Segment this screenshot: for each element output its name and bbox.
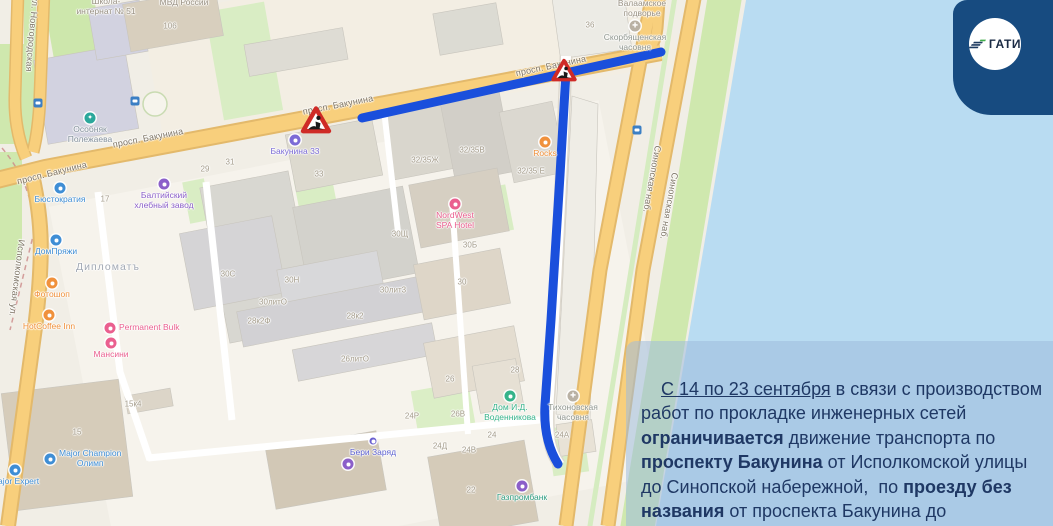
poi-icon [47,278,58,289]
annotation-segment: движение транспорта по [784,428,996,448]
building-number: 32/35Ж [411,155,438,164]
poi-icon [44,310,55,321]
building-number: 30С [221,269,236,278]
poi-label: Major Expert [0,477,39,487]
building-number: 24Д [433,441,447,450]
poi-icon [540,137,551,148]
annotation-segment: ограничивается [641,428,784,448]
building-number: 106 [163,21,176,30]
poi-icon [517,481,528,492]
poi-icon [343,459,354,470]
poi-icon [159,179,170,190]
street-label: Исполкомская ул. [7,239,27,317]
annotation-segment: С 14 по 23 сентября [661,379,831,399]
building-number: 17 [101,194,110,203]
street-label: Синопская наб. [641,145,663,214]
poi-icon [55,183,66,194]
building-number: 30литО [259,297,287,306]
poi-label: Бери Заряд [350,448,396,458]
building-number: 30Н [285,275,300,284]
poi-icon: ✚ [630,21,641,32]
roadworks-sign-icon [549,57,579,92]
area-label: Дипломатъ [76,261,140,273]
poi-label: Бюстократия [35,195,86,205]
poi-label: Permanent Bulk [119,323,179,333]
building-number: 32/35 Е [517,166,545,175]
transport-stop-icon [633,126,642,135]
transport-stop-icon [131,97,140,106]
building-number: 30лит3 [380,285,406,294]
street-label: ул. Новгородская [24,0,41,72]
poi-icon [45,454,56,465]
building-number: 32/35В [459,145,484,154]
gati-badge: ГАТИ [953,0,1053,115]
poi-icon [370,438,377,445]
poi-label: Скорбященская часовня [604,33,667,53]
closure-note: С 14 по 23 сентября в связи с производст… [626,341,1053,526]
poi-label: Мансини [93,350,128,360]
building-number: 26литО [341,354,369,363]
building-number: 30Щ [392,229,408,238]
poi-icon: ✚ [568,391,579,402]
gati-logo-text: ГАТИ [989,37,1021,51]
area-label: Школа- интернат № 51 [76,0,135,17]
building-number: 28к2Ф [248,316,271,325]
poi-label: Rocks [533,149,557,159]
gati-logo-icon [969,37,987,52]
building-number: 33 [315,169,324,178]
poi-label: Фотошоп [34,290,70,300]
poi-label: Особняк Полежаева [68,125,113,145]
poi-label: Бакунина 33 [270,147,319,157]
building-number: 26В [451,409,465,418]
building-number: 15к4 [125,399,142,408]
poi-icon [105,323,116,334]
street-label: просп. Бакунина [16,159,88,186]
area-label: МВД России [160,0,209,8]
building-number: 24А [555,430,569,439]
poi-icon [450,199,461,210]
road-closure-infographic: просп. Бакунинапросп. Бакунинапросп. Бак… [0,0,1053,526]
poi-label: ДомПряжи [35,247,77,257]
poi-label: Дом И.Д. Воденникова [484,403,536,423]
roadworks-sign-icon [298,104,334,145]
annotation-segment: проспекту Бакунина [641,452,823,472]
building-number: 26 [446,374,455,383]
street-label: просп. Бакунина [112,126,184,150]
poi-label: HotCoffee Inn [23,322,75,332]
building-number: 29 [201,164,210,173]
poi-label: Тихоновская часовня [548,403,598,423]
building-number: 15 [73,427,82,436]
building-number: 31 [226,157,235,166]
poi-label: NordWest SPA Hotel [436,211,474,231]
poi-icon: ✦ [85,113,96,124]
transport-stop-icon [34,99,43,108]
poi-icon [106,338,117,349]
building-number: 24В [462,445,476,454]
poi-icon [51,235,62,246]
poi-label: Балтийский хлебный завод [134,191,193,211]
building-number: 30 [458,277,467,286]
building-number: 28 [511,365,520,374]
building-number: 24 [488,430,497,439]
poi-label: Газпромбанк [497,493,547,503]
poi-label: Major Champion Олимп [59,449,121,469]
street-label: Синопская наб. [658,172,680,241]
building-number: 30Б [463,240,477,249]
building-number: 24Р [405,411,419,420]
building-number: 28к2 [347,311,364,320]
poi-icon [10,465,21,476]
building-number: 36 [586,20,595,29]
poi-icon [505,391,516,402]
area-label: Валаамское подворье [618,0,666,19]
annotation-text: С 14 по 23 сентября в связи с производст… [641,379,1042,526]
building-number: 22 [467,485,476,494]
gati-logo: ГАТИ [969,18,1021,70]
